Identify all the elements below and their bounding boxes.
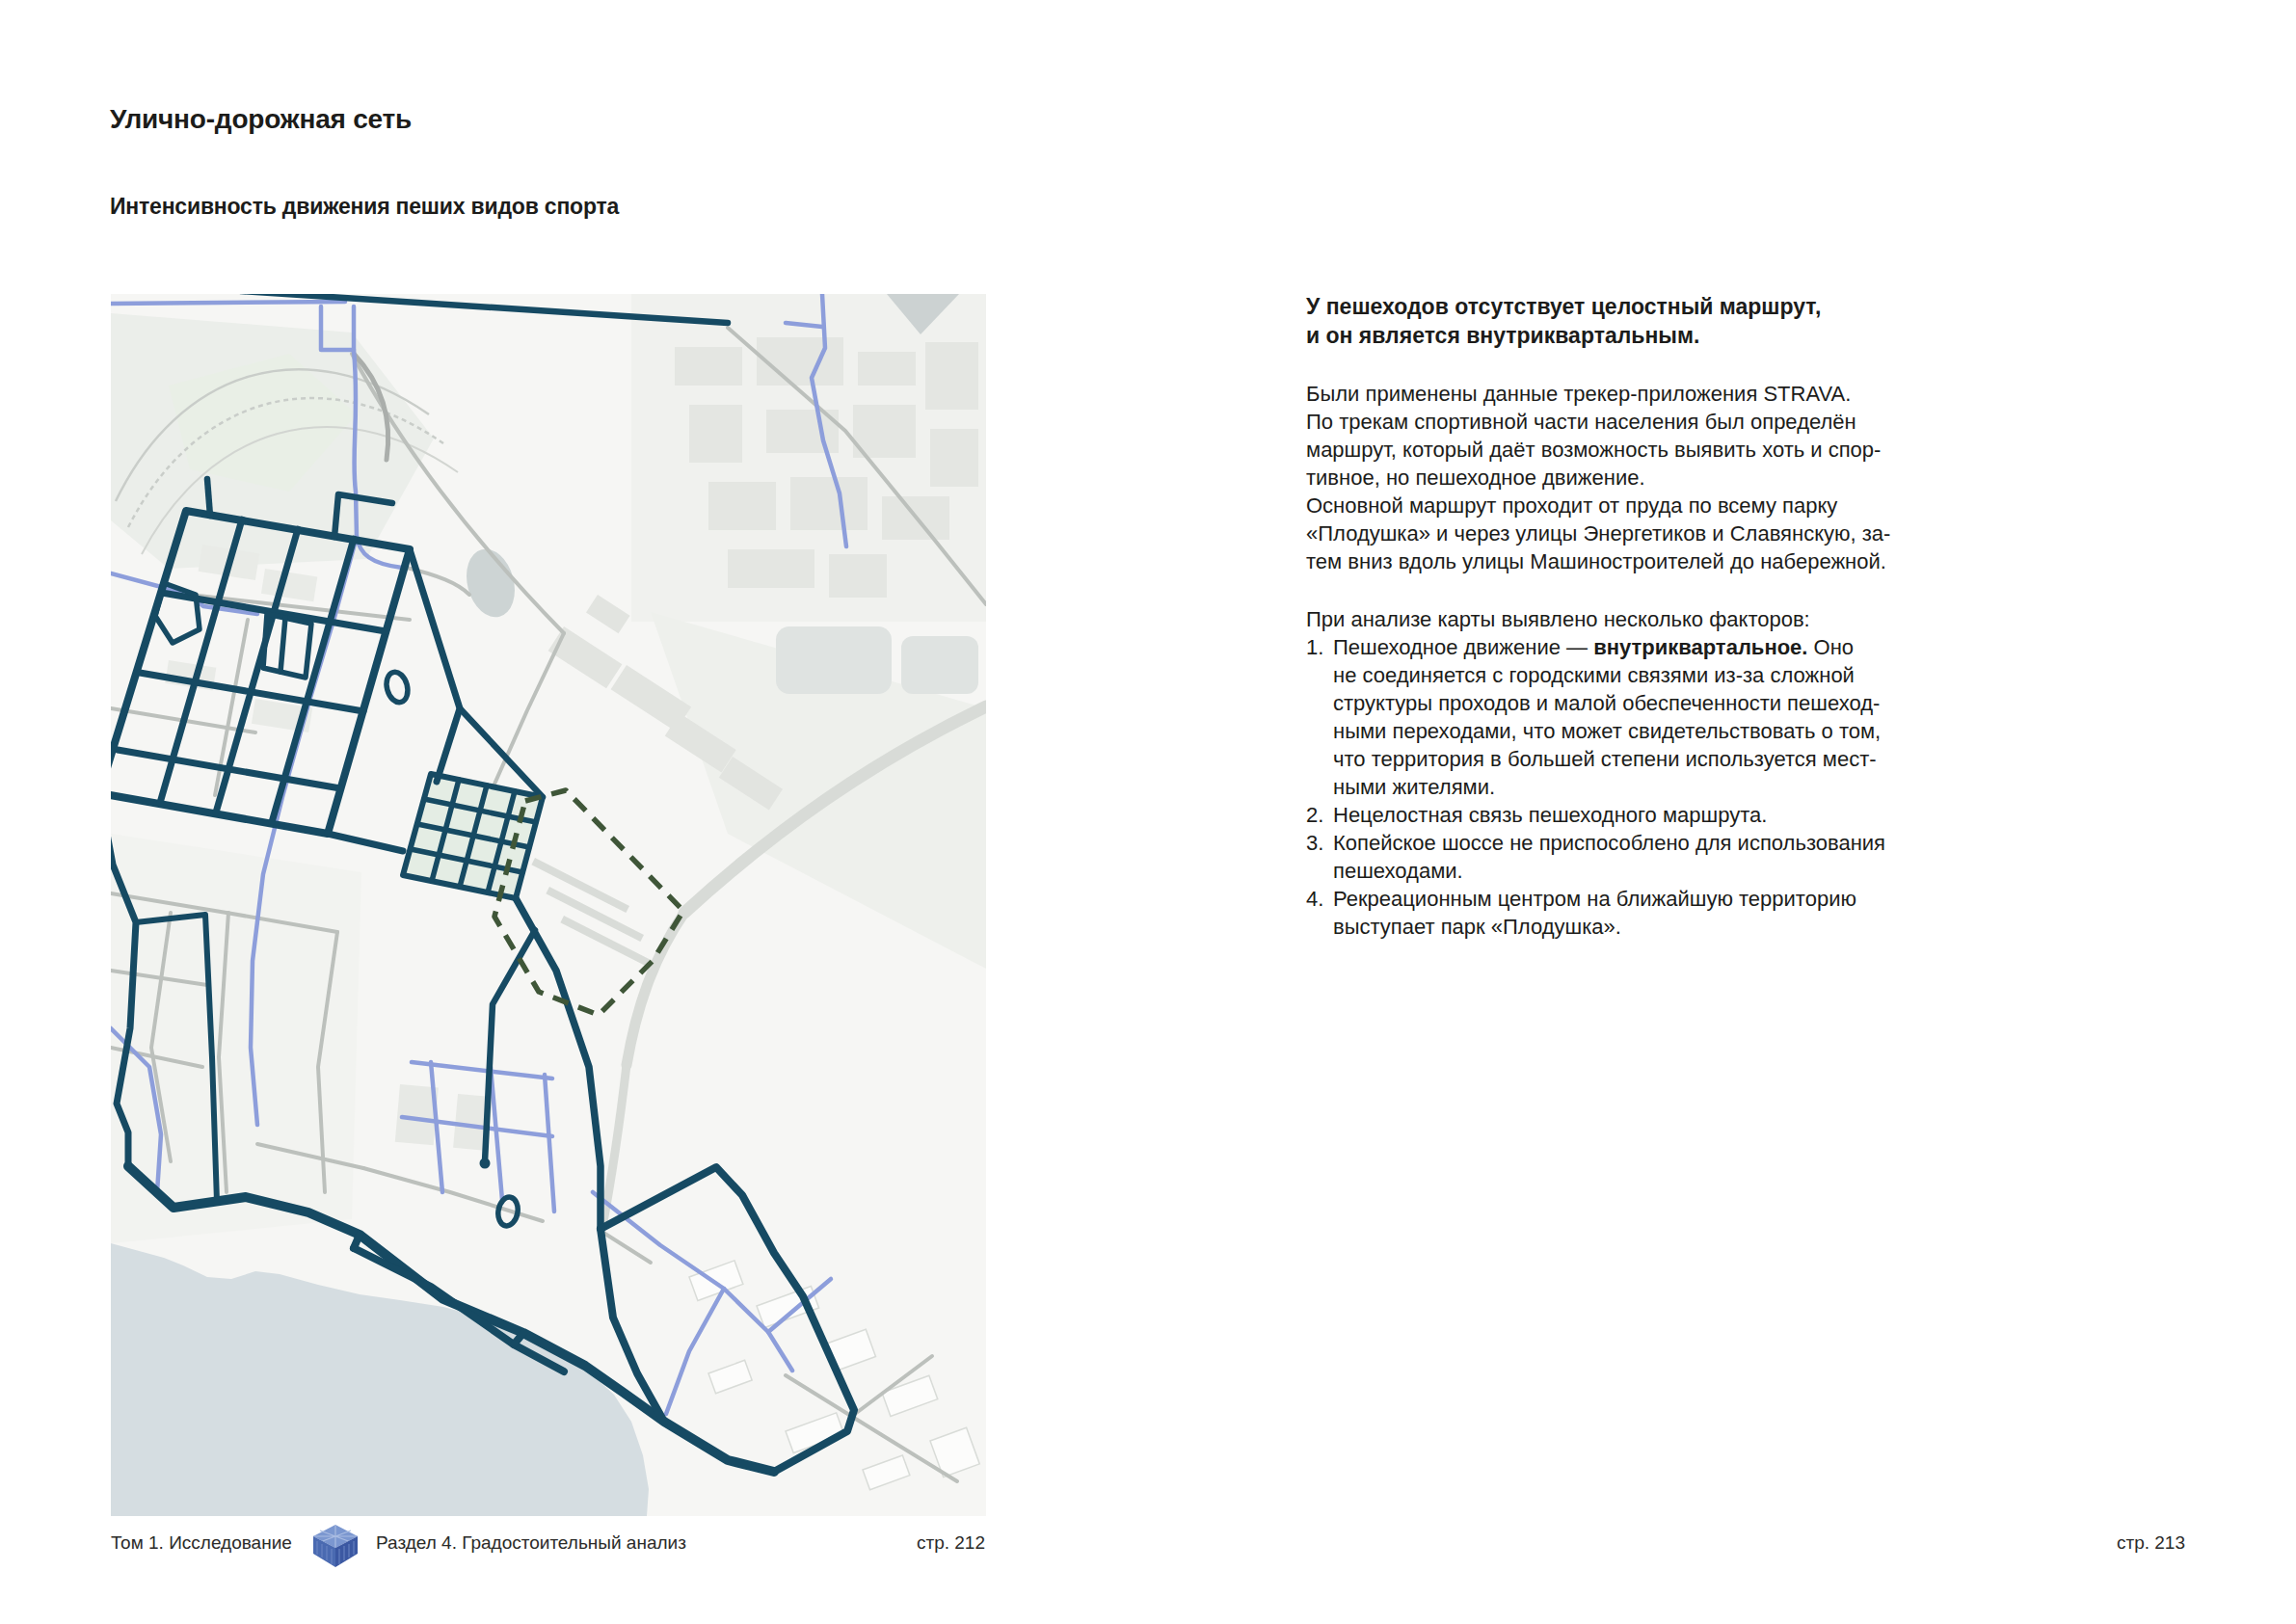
- factor-text-bold: внутриквартальное.: [1593, 635, 1807, 659]
- footer-page-number-left: стр. 212: [111, 1531, 985, 1555]
- strava-intensity-map: [111, 294, 986, 1516]
- factor-item-2: 2. Нецелостная связь пешеходного маршрут…: [1306, 801, 2024, 829]
- page-subtitle: Интенсивность движения пеших видов спорт…: [110, 194, 619, 220]
- factor-item-4: 4. Рекреационным центром на ближайшую те…: [1306, 885, 2024, 941]
- page-spread: Улично-дорожная сеть Интенсивность движе…: [0, 0, 2296, 1624]
- factor-item-3: 3. Копейское шоссе не приспособлено для …: [1306, 829, 2024, 885]
- analysis-lead: У пешеходов отсутствует целостный маршру…: [1306, 292, 2024, 350]
- factors-intro: При анализе карты выявлено несколько фак…: [1306, 605, 2024, 633]
- factor-text: Рекреационным центром на ближайшую терри…: [1333, 885, 1856, 941]
- page-title: Улично-дорожная сеть: [110, 104, 412, 135]
- factor-number: 4.: [1306, 885, 1333, 941]
- factor-number: 1.: [1306, 633, 1333, 801]
- factor-text-suffix: Оно не соединяется с городскими связями …: [1333, 635, 1881, 799]
- factor-item-1: 1. Пешеходное движение — внутриквартальн…: [1306, 633, 2024, 801]
- factor-number: 3.: [1306, 829, 1333, 885]
- factor-text-prefix: Пешеходное движение —: [1333, 635, 1593, 659]
- factor-number: 2.: [1306, 801, 1333, 829]
- analysis-text-column: У пешеходов отсутствует целостный маршру…: [1306, 292, 2024, 941]
- footer-page-number-right: стр. 213: [2117, 1531, 2185, 1555]
- factor-text: Нецелостная связь пешеходного маршрута.: [1333, 801, 1767, 829]
- analysis-paragraph: Были применены данные трекер-приложения …: [1306, 380, 2024, 575]
- factor-text: Пешеходное движение — внутриквартальное.…: [1333, 633, 1881, 801]
- factor-text: Копейское шоссе не приспособлено для исп…: [1333, 829, 1885, 885]
